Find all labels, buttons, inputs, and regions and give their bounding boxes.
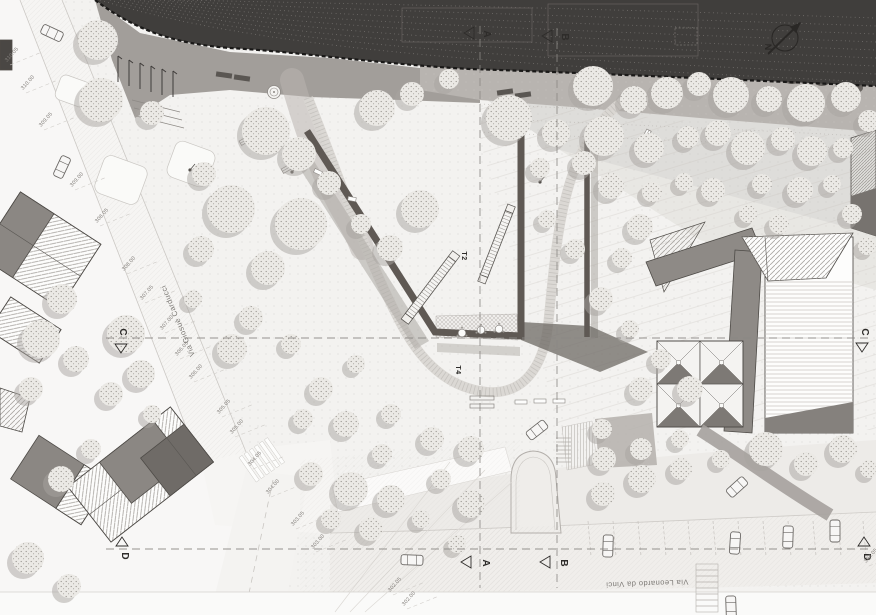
table-chair xyxy=(494,331,496,333)
tree-canopy-texture xyxy=(351,214,371,234)
ramp-label-t2: T2 xyxy=(460,251,467,260)
tree-canopy-texture xyxy=(184,290,202,308)
tree-canopy-texture xyxy=(457,490,485,518)
tree-canopy-texture xyxy=(309,377,333,401)
tree-canopy-texture xyxy=(99,382,123,406)
section-letter-A: A xyxy=(480,559,491,566)
tree-canopy-texture xyxy=(592,419,612,439)
tree-canopy-texture xyxy=(81,439,101,459)
tree-canopy-texture xyxy=(749,432,783,466)
site-plan-drawing: T2 T4 xyxy=(0,0,876,615)
car xyxy=(726,596,737,615)
car xyxy=(830,520,840,542)
pyramid-skylight xyxy=(719,403,723,407)
tree-canopy-texture xyxy=(372,444,392,464)
tree-canopy-texture xyxy=(671,430,689,448)
tree-canopy-texture xyxy=(797,136,827,166)
table-chair xyxy=(466,335,468,337)
tree-canopy-texture xyxy=(22,320,60,358)
section-letter-B: B xyxy=(559,33,570,40)
tree-canopy-texture xyxy=(858,237,876,255)
section-letter-A: A xyxy=(481,30,492,37)
bottom-sidewalk xyxy=(0,592,876,615)
table-chair xyxy=(485,332,487,334)
tree-canopy-texture xyxy=(48,466,74,492)
tree-canopy-texture xyxy=(794,452,818,476)
table-chair xyxy=(503,331,505,333)
table-chair xyxy=(498,323,500,325)
tree-canopy-texture xyxy=(334,472,368,506)
tree-canopy-texture xyxy=(530,158,550,178)
tree-canopy-texture xyxy=(642,182,662,202)
tree-canopy-texture xyxy=(629,377,653,401)
tree-canopy-texture xyxy=(12,542,44,574)
tree-canopy-texture xyxy=(573,66,613,106)
tree-canopy-texture xyxy=(486,95,532,141)
tree-canopy-texture xyxy=(591,482,615,506)
tree-canopy-texture xyxy=(347,355,365,373)
tree-canopy-texture xyxy=(377,485,405,513)
tree-canopy-texture xyxy=(651,349,671,369)
tree-canopy-texture xyxy=(282,137,316,171)
tree-canopy-texture xyxy=(420,427,444,451)
tree-canopy-texture xyxy=(752,174,772,194)
table-chair xyxy=(461,327,463,329)
car-body xyxy=(729,532,741,555)
tree-canopy-texture xyxy=(127,360,155,388)
tree-canopy-texture xyxy=(377,235,403,261)
tree-canopy-texture xyxy=(140,101,164,125)
section-letter-C: C xyxy=(859,328,870,335)
tree-canopy-texture xyxy=(192,162,216,186)
tree-canopy-texture xyxy=(701,178,725,202)
tree-canopy-texture xyxy=(412,510,430,528)
planter xyxy=(515,400,527,404)
tree-canopy-texture xyxy=(439,69,459,89)
tree-canopy-texture xyxy=(592,447,616,471)
tree-canopy-texture xyxy=(705,120,731,146)
tree-canopy-texture xyxy=(448,535,466,553)
site-plan-page: T2 T4 xyxy=(0,0,876,615)
tree-canopy-texture xyxy=(359,90,395,126)
tree-canopy-texture xyxy=(293,409,313,429)
tree-canopy-texture xyxy=(188,236,214,262)
pyramid-skylight xyxy=(719,360,723,364)
tree-canopy-texture xyxy=(670,458,692,480)
tree-canopy-texture xyxy=(239,306,263,330)
car-body xyxy=(830,520,840,542)
car xyxy=(783,526,794,548)
tree-canopy-texture xyxy=(299,462,323,486)
tree-canopy-texture xyxy=(79,78,123,122)
table-top xyxy=(495,325,503,333)
tree-canopy-texture xyxy=(47,284,77,314)
car-body xyxy=(726,596,737,615)
table-chair xyxy=(476,332,478,334)
car-body xyxy=(603,535,614,557)
tree-canopy-texture xyxy=(572,151,596,175)
ramp-label-t4: T4 xyxy=(454,365,461,374)
tree-canopy-texture xyxy=(771,127,795,151)
tree-canopy-texture xyxy=(787,177,813,203)
north-letter: N xyxy=(763,44,773,51)
table-top xyxy=(458,329,466,337)
tree-canopy-texture xyxy=(621,320,639,338)
table-top xyxy=(477,326,485,334)
fountain xyxy=(268,86,281,99)
tree-canopy-texture xyxy=(381,404,401,424)
tree-canopy-texture xyxy=(620,86,648,114)
tree-canopy-texture xyxy=(731,131,765,165)
tree-canopy-texture xyxy=(634,133,664,163)
tree-canopy-texture xyxy=(57,574,81,598)
tree-canopy-texture xyxy=(78,20,118,60)
car xyxy=(401,555,423,566)
tree-canopy-texture xyxy=(677,376,703,402)
car-body xyxy=(401,555,423,566)
tree-canopy-texture xyxy=(542,119,570,147)
tree-canopy-texture xyxy=(823,175,841,193)
tree-canopy-texture xyxy=(630,438,652,460)
tree-canopy-texture xyxy=(321,509,341,529)
tree-canopy-texture xyxy=(589,287,613,311)
tree-canopy-texture xyxy=(317,171,341,195)
tree-canopy-texture xyxy=(143,405,161,423)
section-letter-D: D xyxy=(119,552,130,559)
tree-canopy-texture xyxy=(712,450,730,468)
tree-canopy-texture xyxy=(739,205,757,223)
tree-canopy-texture xyxy=(829,435,857,463)
tree-canopy-texture xyxy=(281,334,301,354)
tree-canopy-texture xyxy=(675,173,693,191)
tree-canopy-texture xyxy=(217,334,247,364)
tree-canopy-texture xyxy=(842,204,862,224)
car xyxy=(603,535,614,557)
tree-canopy-texture xyxy=(769,214,789,234)
tree-canopy-texture xyxy=(651,77,683,109)
tree-canopy-texture xyxy=(713,77,749,113)
tree-canopy-texture xyxy=(831,82,861,112)
tree-canopy-texture xyxy=(207,185,255,233)
tree-canopy-texture xyxy=(400,82,424,106)
table-chair xyxy=(457,335,459,337)
tree-canopy-texture xyxy=(275,198,327,250)
tree-canopy-texture xyxy=(584,116,624,156)
planter xyxy=(534,399,546,403)
section-letter-B: B xyxy=(558,559,569,566)
tree-canopy-texture xyxy=(565,239,585,259)
planter xyxy=(553,399,565,403)
tree-canopy-texture xyxy=(538,210,556,228)
tree-canopy-texture xyxy=(687,72,711,96)
tree-canopy-texture xyxy=(756,86,782,112)
tree-canopy-texture xyxy=(628,465,656,493)
tree-canopy-texture xyxy=(63,346,89,372)
tree-canopy-texture xyxy=(677,126,699,148)
car xyxy=(729,532,741,555)
tree-canopy-texture xyxy=(431,469,451,489)
tree-canopy-texture xyxy=(627,214,653,240)
fountain-center xyxy=(273,91,275,93)
tree-canopy-texture xyxy=(359,517,383,541)
tree-canopy-texture xyxy=(19,377,43,401)
car-body xyxy=(783,526,794,548)
section-letter-C: C xyxy=(117,328,128,335)
tree-canopy-texture xyxy=(251,251,285,285)
tree-canopy-texture xyxy=(333,411,359,437)
tree-canopy-texture xyxy=(787,84,825,122)
tree-canopy-texture xyxy=(833,138,853,158)
tree-canopy-texture xyxy=(598,173,624,199)
tree-canopy-texture xyxy=(612,248,632,268)
tree-canopy-texture xyxy=(401,190,439,228)
pyramid-skylight xyxy=(676,360,680,364)
